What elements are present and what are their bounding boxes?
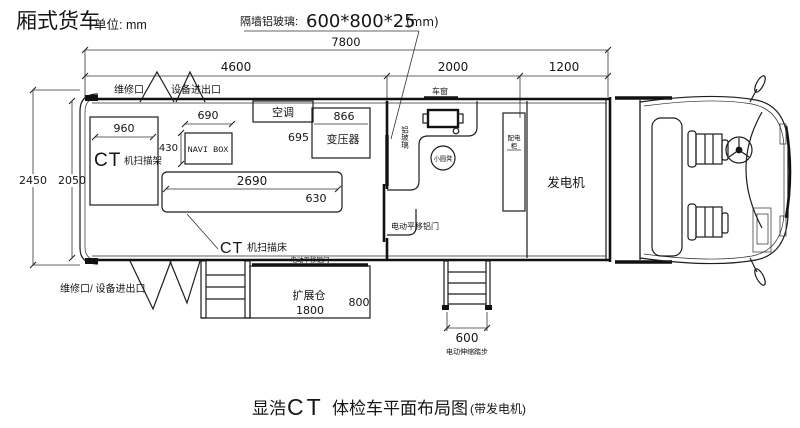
generator-room: 发电机: [527, 101, 585, 258]
top-hatches: 维修口 设备进出口: [114, 72, 221, 102]
steps-left-rail: [444, 261, 448, 307]
dim-bed-w-text: 630: [306, 192, 327, 205]
rear-top-corner-step: [85, 95, 98, 101]
dim-navi-w-text: 690: [198, 109, 219, 122]
ac-label: 空调: [272, 105, 294, 119]
side-window-label: 车窗: [432, 86, 448, 96]
dim-gantry-text: 960: [114, 122, 135, 135]
power-cabinet-label-1: 配电: [508, 133, 522, 142]
vehicle-type-label: 厢式货车: [16, 10, 100, 33]
dim-bay-l-text: 1800: [296, 304, 324, 317]
dim-transformer-h-text: 695: [288, 131, 309, 144]
console-knob: [453, 128, 459, 134]
cab-inner-outline: [644, 101, 784, 259]
bottom-door-swing-2: [170, 261, 200, 303]
title-ct: CT: [287, 394, 324, 420]
dim-bay-d-text: 800: [349, 296, 370, 309]
stairs-right-rail: [245, 261, 250, 318]
floor-plan-page: 厢式货车 单位: mm 隔墙铝玻璃: 600*800*25 (mm) 7800 …: [0, 0, 800, 428]
title-block: 显浩 CT 体检车平面布局图 (带发电机): [252, 394, 526, 420]
hatch-swing-1: [140, 72, 174, 102]
cab-rear-shelf: [652, 118, 682, 256]
bottom-hatches: 维修口/ 设备进出口: [60, 261, 200, 309]
passenger-seat: [688, 204, 728, 240]
dim-bed-l-text: 2690: [237, 174, 268, 188]
title-suffix: (带发电机): [470, 401, 526, 416]
steps-right-rail: [486, 261, 490, 307]
dim-outer-height-text: 2450: [19, 174, 47, 187]
equipment-access-label: 设备进出口: [171, 83, 221, 96]
bed-ct-text: CT: [220, 240, 243, 257]
glass-panel-label: 铝玻璃: [400, 125, 409, 150]
dim-total-length: 7800: [82, 35, 611, 97]
console-desk: [428, 110, 458, 127]
dim-total-text: 7800: [331, 35, 360, 49]
truck-cab: [615, 74, 790, 286]
gantry-label: 机扫描架: [124, 155, 163, 167]
dim-seg1-text: 4600: [221, 60, 252, 74]
entry-steps: 600 电动伸缩踏步: [442, 261, 492, 356]
navi-box-label: NAVI BOX: [188, 145, 229, 155]
driver-seat: [688, 131, 728, 167]
expansion-bay-label: 扩展仓: [293, 288, 326, 302]
rear-stairs: [201, 261, 250, 318]
control-room: 车窗 小圆凳 配电 柜: [387, 86, 525, 235]
unit-label: 单位: mm: [94, 17, 147, 32]
title-prefix: 显浩: [252, 399, 286, 418]
gantry-ct-text: CT: [94, 150, 121, 171]
glass-note-unit: (mm): [406, 15, 439, 29]
power-cabinet: [503, 113, 525, 211]
title-main: 体检车平面布局图: [332, 399, 468, 418]
power-cabinet-label-2: 柜: [511, 141, 518, 150]
dim-inner-height-text: 2050: [58, 174, 86, 187]
floor-plan-canvas: 厢式货车 单位: mm 隔墙铝玻璃: 600*800*25 (mm) 7800 …: [0, 0, 800, 428]
glass-note-size: 600*800*25: [306, 11, 416, 32]
dim-steps-text: 600: [456, 331, 479, 345]
partition-door-label: 电动平移铝门: [391, 221, 439, 231]
glass-note-label: 隔墙铝玻璃:: [240, 14, 298, 28]
dim-heights: 2450 2050: [17, 87, 90, 268]
transformer-label: 变压器: [327, 132, 360, 146]
dim-seg3-text: 1200: [549, 60, 580, 74]
generator-label: 发电机: [547, 175, 585, 190]
dim-navi-h-text: 430: [159, 143, 178, 154]
dim-transformer-w-text: 866: [334, 110, 355, 123]
bed-leader: [187, 214, 218, 249]
partition-wall: 铝玻璃 电动平移铝门: [384, 101, 439, 260]
rear-bottom-corner-step: [85, 258, 98, 264]
bed-label: 机扫描床: [247, 241, 287, 254]
dim-seg2-text: 2000: [438, 60, 469, 74]
ct-room: 960 CT 机扫描架 690 430 NAVI BOX 空调 866 695 …: [90, 101, 370, 257]
bottom-access-label: 维修口/ 设备进出口: [60, 282, 146, 295]
stairs-left-rail: [201, 261, 206, 318]
stool-label: 小圆凳: [434, 155, 453, 163]
glass-note-leader: [391, 31, 419, 139]
expansion-bay: 电动平移铝门 扩展仓 1800 800: [250, 255, 370, 318]
cab-outline: [640, 96, 788, 263]
expansion-door-label: 电动平移铝门: [291, 255, 330, 264]
windshield-line: [746, 112, 762, 228]
maintenance-port-label: 维修口: [114, 83, 144, 96]
side-mirrors: [750, 74, 767, 286]
steps-label: 电动伸缩踏步: [446, 347, 488, 356]
